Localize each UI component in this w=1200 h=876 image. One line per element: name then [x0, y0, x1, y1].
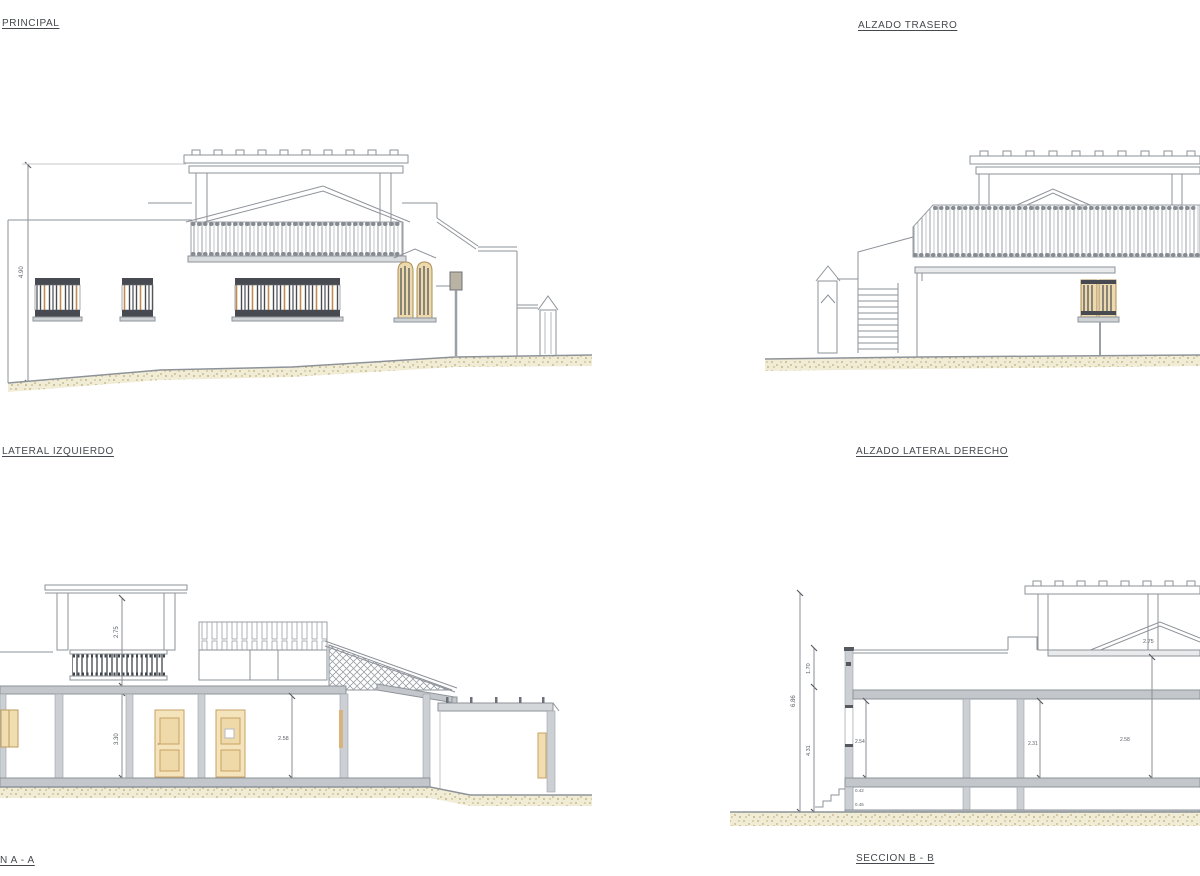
drawing-sheet: PRINCIPAL ALZADO TRASERO LATERAL IZQUIER…	[0, 0, 1200, 876]
room-dims-b: 2.54 2.31 2.58	[855, 657, 1152, 778]
chimney-right	[517, 296, 558, 356]
cut-walls-b	[963, 699, 1024, 778]
dim-text-principal-height: 4.90	[19, 266, 25, 278]
entry-steps	[815, 783, 845, 807]
gable-rear	[1017, 189, 1090, 205]
dim-b-upper: 1.70	[806, 663, 812, 674]
floor-slab-b	[845, 778, 1200, 787]
garden-wall	[438, 697, 559, 792]
window-barred-1	[33, 278, 82, 321]
eave-b	[1048, 650, 1200, 656]
window-barred-wide	[232, 278, 343, 321]
dim-b-total: 6.86	[791, 695, 797, 707]
window-rear	[1078, 280, 1119, 362]
section-a: 2.75 0.40 3.30	[0, 585, 592, 806]
open-door-leaf	[339, 710, 343, 748]
dim-b-gable: 2.75	[1143, 639, 1154, 645]
ground-section-a	[0, 787, 592, 806]
dim-b-room3: 2.58	[1120, 737, 1130, 743]
dim-b-foot: 0.45	[855, 802, 864, 807]
roof-tower	[45, 585, 187, 650]
plans-svg: 4.90	[0, 0, 1200, 876]
ground-front	[8, 355, 592, 392]
elevation-front: 4.90	[8, 150, 592, 392]
clerestory	[199, 622, 327, 680]
chimney-left	[816, 266, 840, 353]
terrace-line-b	[853, 650, 1008, 653]
ceiling-slab-b	[853, 690, 1200, 699]
interior-door-2	[216, 710, 245, 777]
dim-b-slab: 0.42	[855, 788, 864, 793]
stair-bulkhead	[858, 237, 913, 283]
gable-roof	[186, 186, 410, 222]
room-dim-a: 2.58	[278, 696, 292, 778]
section-b-dims: 6.86 1.70 4.31	[791, 593, 814, 812]
dim-b-room2: 2.31	[1028, 741, 1038, 747]
rear-eave	[915, 267, 1115, 273]
ground-rear	[765, 355, 1200, 371]
exterior-stairs	[858, 283, 898, 353]
gable-b	[1083, 622, 1200, 653]
section-b: 6.86 1.70 4.31	[730, 581, 1200, 826]
interior-door-1	[155, 710, 184, 777]
window-barred-2	[120, 278, 155, 321]
lamp-post	[450, 272, 462, 356]
window-cut-left	[1, 710, 18, 747]
terrace-railing	[70, 650, 167, 680]
floor-slab-a	[0, 778, 430, 787]
dim-b-lower: 4.31	[806, 745, 812, 756]
pergola-rear	[970, 151, 1200, 205]
dim-a-room2: 2.58	[278, 736, 289, 742]
cut-walls-a	[0, 694, 430, 778]
elevation-rear	[765, 151, 1200, 371]
pergola-b	[1025, 581, 1200, 650]
ground-section-b	[730, 812, 1200, 826]
ceiling-slab-a	[0, 686, 346, 694]
dim-b-room1: 2.54	[855, 739, 865, 745]
roof-tile-band-rear	[913, 205, 1200, 257]
dim-a-room: 3.30	[114, 733, 120, 745]
pergola-post-right	[380, 173, 391, 222]
terrace-tile-band	[188, 222, 406, 262]
foundation-b: 0.42 0.45	[845, 787, 1200, 814]
terrace-parapet-step	[1008, 637, 1037, 650]
pergola-post-left	[196, 173, 207, 222]
dim-a-tower: 2.75	[114, 626, 120, 638]
